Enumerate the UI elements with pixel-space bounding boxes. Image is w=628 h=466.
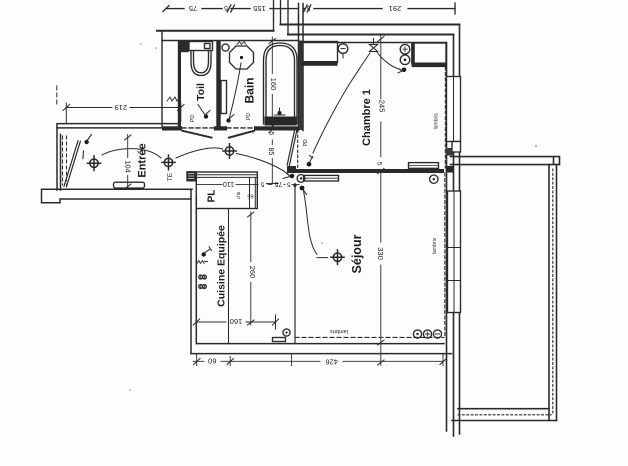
svg-text:Bain: Bain (243, 77, 257, 103)
svg-text:Toil: Toil (195, 83, 207, 101)
svg-text:260: 260 (248, 266, 257, 279)
svg-text:245: 245 (377, 100, 386, 113)
svg-text:PD: PD (190, 115, 196, 122)
svg-text:426: 426 (325, 357, 338, 366)
svg-text:TE: TE (167, 172, 174, 181)
svg-text:Chambre 1: Chambre 1 (361, 89, 373, 146)
svg-text:5: 5 (287, 180, 291, 187)
svg-text:PD: PD (246, 113, 252, 120)
svg-text:60: 60 (208, 357, 216, 366)
svg-text:75: 75 (189, 4, 197, 13)
svg-text:155: 155 (253, 4, 266, 13)
svg-text:5: 5 (260, 180, 264, 187)
svg-text:PD: PD (303, 139, 309, 146)
svg-text:104: 104 (124, 160, 133, 173)
svg-text:75: 75 (275, 180, 283, 187)
svg-text:160: 160 (230, 317, 243, 326)
svg-text:lambris: lambris (434, 113, 440, 130)
svg-text:lambris: lambris (432, 237, 438, 254)
svg-text:5: 5 (224, 4, 228, 11)
svg-text:110: 110 (223, 180, 234, 187)
svg-text:5: 5 (306, 4, 310, 11)
svg-text:85: 85 (267, 148, 274, 156)
svg-text:291: 291 (389, 4, 402, 13)
svg-text:Séjour: Séjour (350, 234, 364, 273)
svg-text:lambris: lambris (330, 328, 348, 334)
svg-text:160: 160 (269, 78, 278, 91)
svg-text:5: 5 (376, 162, 383, 166)
svg-text:Cuisine Equipée: Cuisine Equipée (215, 225, 227, 307)
svg-text:chb: chb (236, 191, 241, 199)
svg-text:65: 65 (247, 193, 253, 199)
svg-text:5: 5 (267, 132, 274, 136)
svg-text:219: 219 (115, 103, 128, 112)
svg-text:330: 330 (376, 247, 385, 260)
svg-text:PL: PL (207, 190, 218, 203)
